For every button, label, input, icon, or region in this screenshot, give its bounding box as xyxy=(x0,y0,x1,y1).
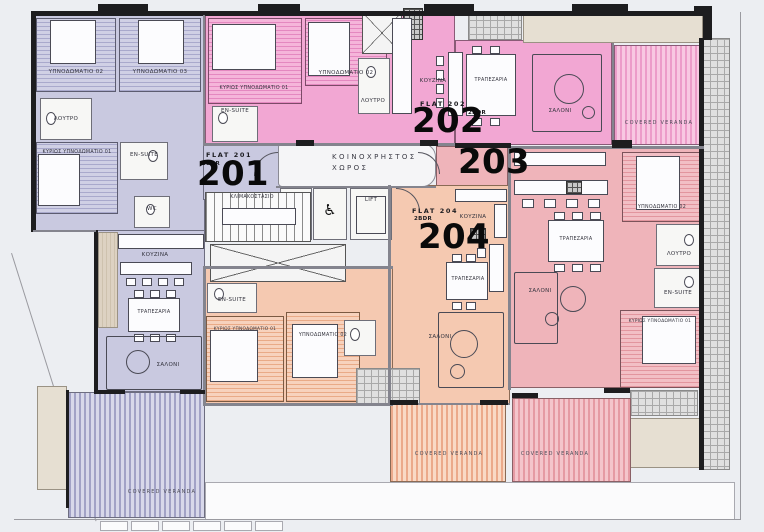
plant xyxy=(582,106,595,119)
parking-bay xyxy=(100,521,128,531)
room-label: EN-SUITE xyxy=(207,297,257,303)
kitchen-col xyxy=(494,204,507,238)
room-label: ΥΠΝΟΔΩΜΑΤΙΟ 02 xyxy=(286,333,360,339)
wall xyxy=(33,230,96,232)
chair xyxy=(490,118,500,126)
wall xyxy=(390,400,418,405)
room-label: EN-SUITE xyxy=(654,290,702,296)
walkway-east xyxy=(702,38,730,470)
stool xyxy=(436,84,444,94)
wall xyxy=(276,186,436,188)
wall xyxy=(480,400,508,405)
planter-west xyxy=(37,386,67,490)
plot-line-east xyxy=(740,12,741,520)
room-label: ΤΡΑΠΕΖΑΡΙΑ xyxy=(444,277,492,283)
bed xyxy=(50,20,96,64)
wall xyxy=(203,266,206,405)
room-label: ΚΟΥΖΙΝΑ xyxy=(450,214,496,220)
coffee-table xyxy=(554,74,584,104)
site-bottom-strip xyxy=(205,482,735,520)
room-label: ΥΠΝΟΔΩΜΑΤΙΟ 02 xyxy=(305,70,387,76)
floor-plan: ΥΠΝΟΔΩΜΑΤΙΟ 02ΥΠΝΟΔΩΜΑΤΙΟ 03ΛΟΥΤΡΟΚΥΡΙΩΣ… xyxy=(0,0,764,532)
wall xyxy=(31,11,36,232)
stool xyxy=(522,199,534,208)
kitchen-counter xyxy=(455,189,507,202)
flat203-veranda xyxy=(512,398,631,482)
room-label: ΤΡΑΠΕΖΑΡΙΑ xyxy=(548,237,604,243)
room-label: ΛΟΥΤΡΟ xyxy=(40,116,92,122)
parking-bay xyxy=(255,521,283,531)
parking-bay xyxy=(193,521,221,531)
planter-north xyxy=(468,12,522,40)
chair xyxy=(490,46,500,54)
chair xyxy=(554,212,565,220)
chair xyxy=(472,46,482,54)
bed xyxy=(636,156,680,210)
wall xyxy=(203,266,393,269)
chair xyxy=(150,290,160,298)
wall xyxy=(604,388,630,393)
stair-landing xyxy=(222,208,296,225)
room-label: ΚΥΡΙΩΣ ΥΠΝΟΔΩΜΑΤΙΟ 01 xyxy=(618,320,702,325)
wall xyxy=(66,390,69,508)
flat203-number: 203 xyxy=(458,146,522,178)
flat203-bathroom xyxy=(656,224,702,266)
wall xyxy=(203,15,205,145)
chair xyxy=(590,264,601,272)
room-label: ΣΑΛΟΝΙ xyxy=(538,108,582,114)
flat202-veranda xyxy=(614,45,702,145)
stair-void xyxy=(210,244,346,282)
kitchen-island xyxy=(489,244,504,292)
wall xyxy=(203,143,456,146)
kitchen-counter xyxy=(392,18,412,114)
room-label: ΤΡΑΠΕΖΑΡΙΑ xyxy=(468,78,514,84)
kitchen-island xyxy=(514,180,608,195)
wheelchair-icon: ♿ xyxy=(316,202,344,219)
stool xyxy=(436,56,444,66)
stool xyxy=(158,278,168,286)
chair xyxy=(466,302,476,310)
flat201-ensuite xyxy=(120,142,168,180)
stool xyxy=(126,278,136,286)
flat201-number: 201 xyxy=(197,158,261,190)
wall xyxy=(508,146,704,149)
wall xyxy=(203,403,393,406)
room-label: ΥΠΝΟΔΩΜΑΤΙΟ 02 xyxy=(622,205,702,211)
stool xyxy=(174,278,184,286)
stair-label: ΚΛΙΜΑΚΟΣΤΑΣΙΟ xyxy=(212,195,292,201)
common-area-label: ΚΟΙΝΟΧΡΗΣΤΟΣ ΧΩΡΟΣ xyxy=(332,152,442,174)
room-label: ΥΠΝΟΔΩΜΑΤΙΟ 03 xyxy=(119,69,201,75)
bed xyxy=(210,330,258,382)
toilet xyxy=(684,276,694,288)
room-label: ΚΥΡΙΩΣ ΥΠΝΟΔΩΜΑΤΙΟ 01 xyxy=(206,86,302,92)
room-label: ΣΑΛΟΝΙ xyxy=(520,288,560,294)
chair xyxy=(452,302,462,310)
wall xyxy=(296,140,314,146)
room-label: ΤΡΑΠΕΖΑΡΙΑ xyxy=(126,310,182,316)
wall xyxy=(94,230,98,394)
room-label: ΚΥΡΙΩΣ ΥΠΝΟΔΩΜΑΤΙΟ 01 xyxy=(34,150,120,156)
room-label: ΣΑΛΟΝΙ xyxy=(420,334,460,340)
chair xyxy=(572,212,583,220)
flat204-veranda xyxy=(390,404,506,482)
veranda-label: COVERED VERANDA xyxy=(620,121,698,127)
stool xyxy=(588,199,600,208)
wall xyxy=(388,185,391,405)
room-label: EN-SUITE xyxy=(120,152,168,158)
chair xyxy=(590,212,601,220)
room-label: ΚΟΥΖΙΝΑ xyxy=(412,78,454,84)
stool xyxy=(142,278,152,286)
chair xyxy=(134,290,144,298)
stove xyxy=(566,181,582,194)
toilet xyxy=(684,234,694,246)
room-label: ΣΑΛΟΝΙ xyxy=(142,362,194,368)
veranda-label: COVERED VERANDA xyxy=(92,490,232,496)
room-label: ΥΠΝΟΔΩΜΑΤΙΟ 02 xyxy=(36,69,116,75)
wall xyxy=(33,11,704,16)
kitchen-counter xyxy=(118,234,204,249)
room-label: ΛΟΥΤΡΟ xyxy=(656,251,702,257)
coffee-table xyxy=(560,286,586,312)
plant xyxy=(545,312,559,326)
parking-bay xyxy=(224,521,252,531)
wall-band-north xyxy=(523,14,703,43)
plant xyxy=(450,364,465,379)
plot-line-south xyxy=(14,519,741,520)
flat202-number: 202 xyxy=(412,105,476,137)
stool xyxy=(544,199,556,208)
chair xyxy=(572,264,583,272)
flat204-number: 204 xyxy=(418,221,482,253)
room-label: ΚΟΥΖΙΝΑ xyxy=(112,252,198,258)
flat201-entry-floor xyxy=(98,232,118,328)
parking-bay xyxy=(131,521,159,531)
flat203-ensuite xyxy=(654,268,702,308)
bed xyxy=(38,154,80,206)
veranda-label: COVERED VERANDA xyxy=(514,452,596,458)
bed xyxy=(138,20,184,64)
kitchen-island xyxy=(120,262,192,275)
walkway-patch xyxy=(630,390,698,416)
chair xyxy=(554,264,565,272)
room-label: ΚΥΡΙΩΣ ΥΠΝΟΔΩΜΑΤΙΟ 01 xyxy=(204,328,286,333)
bed xyxy=(212,24,276,70)
wall xyxy=(180,390,205,394)
chair xyxy=(166,290,176,298)
wall xyxy=(612,43,614,145)
wall xyxy=(508,148,511,390)
wall xyxy=(512,393,538,398)
parking-bay xyxy=(162,521,190,531)
room-label: EN-SUITE xyxy=(212,108,258,114)
room-label: ΛΟΥΤΡΟ xyxy=(352,98,394,104)
room-label: WC xyxy=(134,206,170,212)
wall xyxy=(95,390,125,394)
sofa xyxy=(514,272,558,344)
lift-label: LIFT xyxy=(350,197,392,203)
veranda-label: COVERED VERANDA xyxy=(408,452,490,458)
flat201-veranda xyxy=(68,392,205,518)
bed xyxy=(308,22,350,76)
stool xyxy=(566,199,578,208)
wall xyxy=(612,140,632,148)
